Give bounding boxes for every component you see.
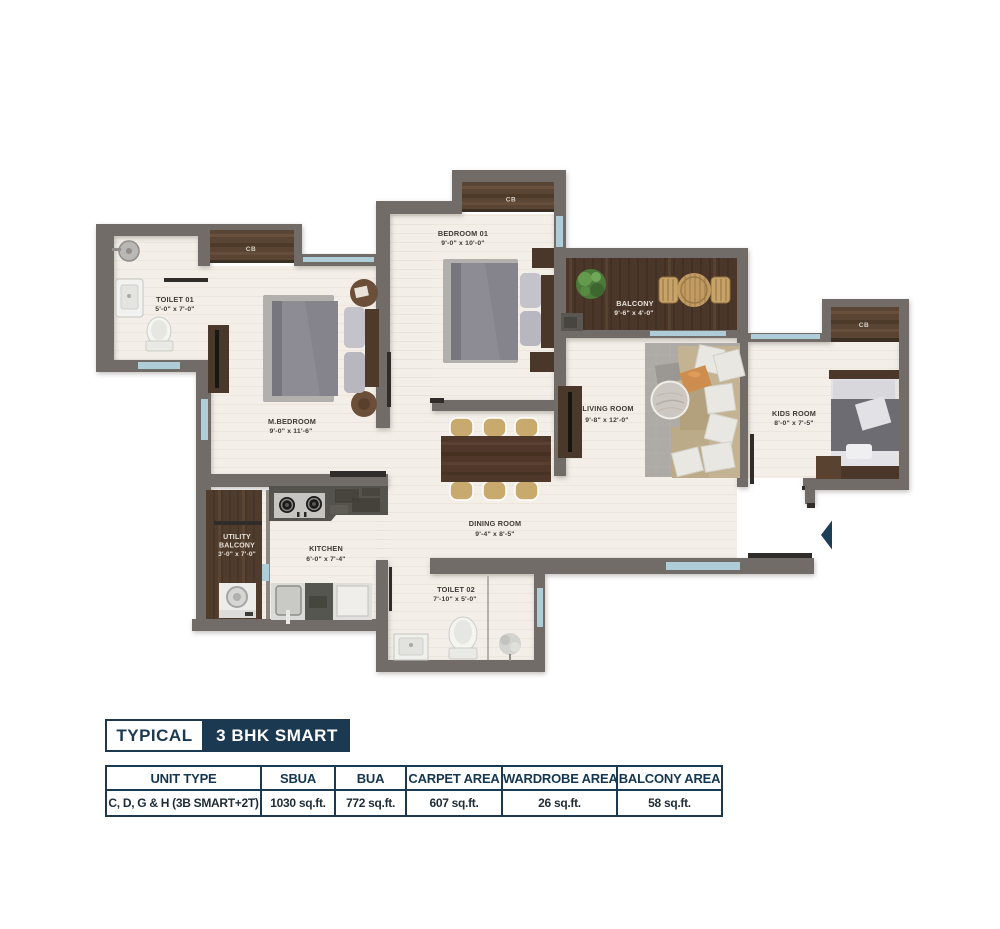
- svg-text:8'-0" x 7'-5": 8'-0" x 7'-5": [774, 420, 813, 427]
- svg-text:BEDROOM 01: BEDROOM 01: [438, 229, 488, 238]
- svg-text:KITCHEN: KITCHEN: [309, 544, 343, 553]
- svg-text:KIDS ROOM: KIDS ROOM: [772, 409, 816, 418]
- svg-text:9'-0" x 11'-6": 9'-0" x 11'-6": [269, 428, 312, 435]
- svg-text:5'-0" x 7'-0": 5'-0" x 7'-0": [155, 306, 194, 313]
- svg-text:BALCONY: BALCONY: [219, 543, 255, 550]
- svg-text:DINING ROOM: DINING ROOM: [469, 519, 521, 528]
- svg-text:7'-10" x 5'-0": 7'-10" x 5'-0": [433, 596, 476, 603]
- svg-text:9'-4" x 8'-5": 9'-4" x 8'-5": [475, 531, 514, 538]
- svg-text:9'-8" x 12'-0": 9'-8" x 12'-0": [585, 417, 628, 424]
- svg-text:CB: CB: [859, 322, 869, 329]
- svg-text:9'-6" x 4'-0": 9'-6" x 4'-0": [614, 310, 653, 317]
- svg-text:CB: CB: [246, 246, 256, 253]
- svg-text:UTILITY: UTILITY: [223, 534, 251, 541]
- svg-text:CB: CB: [506, 197, 516, 204]
- svg-text:LIVING ROOM: LIVING ROOM: [582, 404, 633, 413]
- svg-text:M.BEDROOM: M.BEDROOM: [268, 417, 316, 426]
- svg-text:6'-0" x 7'-4": 6'-0" x 7'-4": [306, 556, 345, 563]
- svg-text:3'-0" x 7'-0": 3'-0" x 7'-0": [218, 551, 256, 558]
- svg-text:9'-0" x 10'-0": 9'-0" x 10'-0": [441, 240, 484, 247]
- svg-text:TOILET 02: TOILET 02: [437, 585, 475, 594]
- svg-text:TOILET 01: TOILET 01: [156, 295, 194, 304]
- svg-text:BALCONY: BALCONY: [616, 299, 653, 308]
